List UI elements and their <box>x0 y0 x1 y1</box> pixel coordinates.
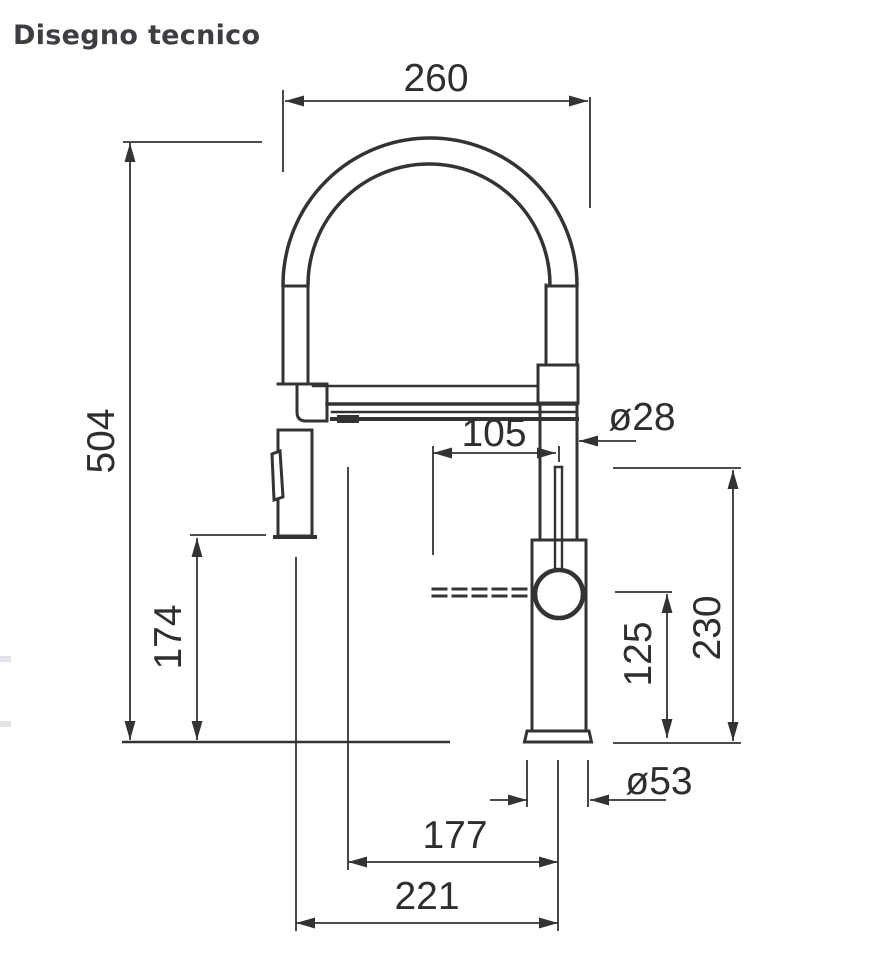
dim-label-221: 221 <box>394 875 459 918</box>
dim-label-177: 177 <box>422 814 487 857</box>
spray-head <box>272 430 315 537</box>
dim-pipe-diameter: ø28 <box>579 396 676 447</box>
spray-head-holder <box>278 384 327 421</box>
dim-label-125: 125 <box>617 621 660 686</box>
dimension-annotations: 260 504 174 105 <box>80 57 741 931</box>
base-flange <box>525 731 592 742</box>
baseline <box>122 742 741 743</box>
faucet-body <box>525 467 592 742</box>
dim-label-174: 174 <box>147 604 190 669</box>
dim-label-504: 504 <box>80 408 123 473</box>
spout-outlet-nub <box>337 415 359 423</box>
dim-head-to-counter: 174 <box>147 535 266 740</box>
faucet-outline <box>272 138 592 742</box>
technical-drawing: 260 504 174 105 <box>0 0 874 964</box>
dim-arch-width: 260 <box>283 57 590 208</box>
dim-label-105: 105 <box>461 412 526 455</box>
spray-head-lever <box>272 451 283 500</box>
dim-label-260: 260 <box>403 57 468 100</box>
dim-outlet-reach: 177 <box>348 814 558 868</box>
dim-lever-top-height: 230 <box>613 468 741 741</box>
dashed-reference-line <box>433 589 530 596</box>
dim-base-diameter: ø53 <box>490 760 693 807</box>
faucet-arch <box>283 138 577 286</box>
faucet-left-tube <box>283 285 308 384</box>
dim-head-axis-reach: 221 <box>296 875 558 929</box>
dim-label-d28: ø28 <box>608 396 675 439</box>
dim-label-d53: ø53 <box>625 760 692 803</box>
handle-joint-circle <box>535 570 583 618</box>
dim-label-230: 230 <box>686 595 729 660</box>
dim-handle-center-height: 125 <box>615 592 673 738</box>
